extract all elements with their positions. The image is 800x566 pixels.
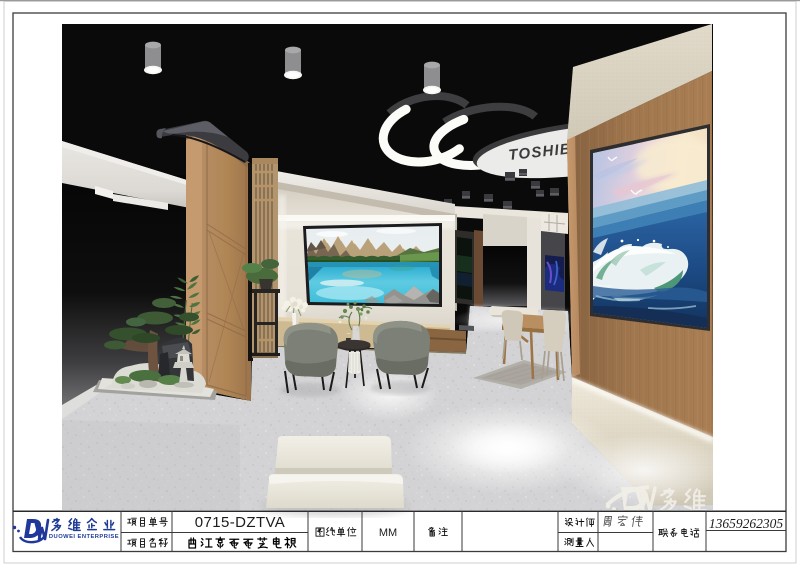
svg-text:0715-DZTVA: 0715-DZTVA — [195, 514, 285, 531]
svg-text:DUOWEI ENTERPRISE: DUOWEI ENTERPRISE — [49, 534, 119, 540]
svg-text:MM: MM — [379, 527, 397, 539]
svg-text:13659262305: 13659262305 — [709, 516, 784, 531]
